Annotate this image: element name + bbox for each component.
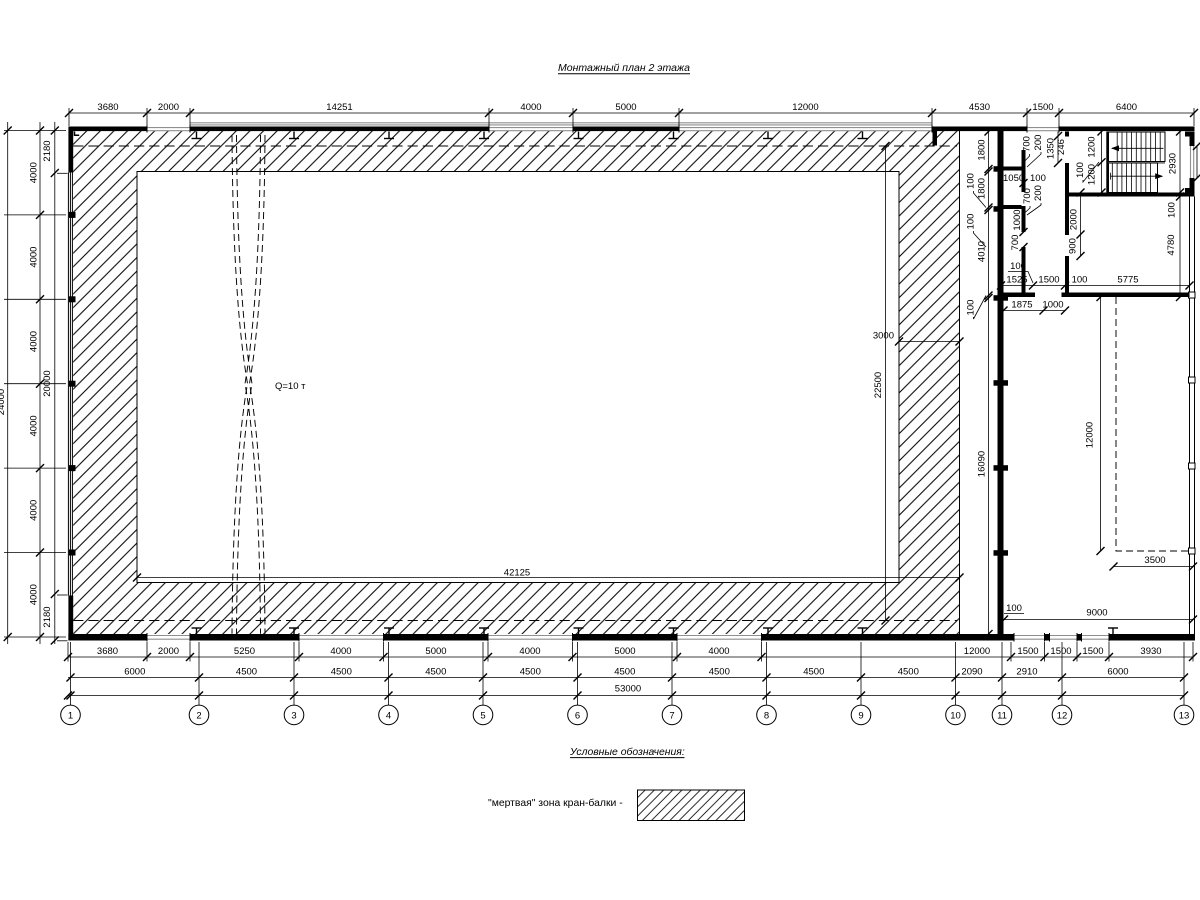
svg-text:1200: 1200 bbox=[1087, 164, 1098, 185]
svg-text:53000: 53000 bbox=[615, 684, 641, 695]
svg-text:100: 100 bbox=[1030, 173, 1046, 184]
svg-text:11: 11 bbox=[997, 710, 1007, 721]
svg-text:4500: 4500 bbox=[709, 667, 730, 678]
svg-text:Монтажный план 2 этажа: Монтажный план 2 этажа bbox=[558, 62, 690, 74]
svg-text:700: 700 bbox=[1022, 136, 1033, 152]
svg-text:100: 100 bbox=[1167, 202, 1178, 218]
svg-text:3500: 3500 bbox=[1144, 555, 1165, 566]
svg-text:6000: 6000 bbox=[124, 667, 145, 678]
svg-text:16090: 16090 bbox=[977, 451, 988, 477]
svg-text:1500: 1500 bbox=[1082, 646, 1103, 657]
svg-text:100: 100 bbox=[1010, 261, 1026, 272]
svg-text:24000: 24000 bbox=[0, 389, 7, 415]
svg-text:4010: 4010 bbox=[977, 241, 988, 262]
svg-text:2910: 2910 bbox=[1016, 667, 1037, 678]
svg-text:5: 5 bbox=[480, 710, 485, 721]
svg-text:2090: 2090 bbox=[961, 667, 982, 678]
svg-text:12000: 12000 bbox=[1085, 422, 1096, 448]
svg-text:5000: 5000 bbox=[615, 102, 636, 113]
svg-text:9: 9 bbox=[858, 710, 863, 721]
svg-text:700: 700 bbox=[1010, 235, 1021, 251]
svg-text:1200: 1200 bbox=[1087, 136, 1098, 157]
svg-text:100: 100 bbox=[1072, 275, 1088, 286]
svg-text:1525: 1525 bbox=[1006, 275, 1027, 286]
svg-text:13: 13 bbox=[1179, 710, 1190, 721]
svg-text:4000: 4000 bbox=[29, 331, 40, 352]
svg-text:2180: 2180 bbox=[42, 140, 53, 161]
svg-text:100: 100 bbox=[1075, 162, 1086, 178]
svg-text:4500: 4500 bbox=[425, 667, 446, 678]
svg-text:4500: 4500 bbox=[898, 667, 919, 678]
svg-text:100: 100 bbox=[1006, 603, 1022, 614]
svg-text:100: 100 bbox=[966, 300, 977, 316]
svg-text:6: 6 bbox=[575, 710, 580, 721]
svg-text:5250: 5250 bbox=[234, 646, 255, 657]
svg-text:5775: 5775 bbox=[1117, 275, 1138, 286]
svg-text:4000: 4000 bbox=[29, 415, 40, 436]
svg-text:1875: 1875 bbox=[1011, 300, 1032, 311]
svg-text:700: 700 bbox=[1022, 188, 1033, 204]
svg-text:1800: 1800 bbox=[977, 139, 988, 160]
svg-text:1350: 1350 bbox=[1046, 138, 1057, 159]
svg-text:8: 8 bbox=[764, 710, 769, 721]
svg-text:1800: 1800 bbox=[977, 178, 988, 199]
svg-text:12000: 12000 bbox=[792, 102, 818, 113]
svg-text:4500: 4500 bbox=[520, 667, 541, 678]
svg-text:3680: 3680 bbox=[97, 102, 118, 113]
svg-text:4780: 4780 bbox=[1166, 234, 1177, 255]
svg-text:4500: 4500 bbox=[803, 667, 824, 678]
svg-text:3000: 3000 bbox=[873, 331, 894, 342]
svg-text:2930: 2930 bbox=[1168, 153, 1179, 174]
svg-text:4000: 4000 bbox=[29, 247, 40, 268]
svg-text:4500: 4500 bbox=[236, 667, 257, 678]
svg-text:1500: 1500 bbox=[1017, 646, 1038, 657]
svg-text:1000: 1000 bbox=[1012, 209, 1023, 230]
svg-text:10: 10 bbox=[950, 710, 961, 721]
svg-text:12: 12 bbox=[1057, 710, 1068, 721]
svg-text:4000: 4000 bbox=[708, 646, 729, 657]
svg-text:2000: 2000 bbox=[158, 646, 179, 657]
svg-text:200: 200 bbox=[1033, 185, 1044, 201]
svg-text:100: 100 bbox=[966, 173, 977, 189]
svg-text:4: 4 bbox=[386, 710, 391, 721]
svg-text:Q=10 т: Q=10 т bbox=[275, 381, 306, 392]
svg-text:4000: 4000 bbox=[330, 646, 351, 657]
svg-text:"мертвая" зона кран-балки -: "мертвая" зона кран-балки - bbox=[488, 797, 623, 809]
svg-text:6000: 6000 bbox=[1107, 667, 1128, 678]
svg-text:5000: 5000 bbox=[425, 646, 446, 657]
svg-text:2: 2 bbox=[196, 710, 201, 721]
svg-text:Условные обозначения:: Условные обозначения: bbox=[569, 746, 685, 758]
svg-text:4000: 4000 bbox=[29, 500, 40, 521]
svg-text:7: 7 bbox=[669, 710, 674, 721]
svg-text:3930: 3930 bbox=[1140, 646, 1161, 657]
svg-text:42125: 42125 bbox=[504, 567, 530, 578]
svg-text:4000: 4000 bbox=[29, 162, 40, 183]
svg-text:1000: 1000 bbox=[1042, 300, 1063, 311]
svg-text:3680: 3680 bbox=[97, 646, 118, 657]
svg-text:3: 3 bbox=[291, 710, 296, 721]
svg-text:14251: 14251 bbox=[326, 102, 352, 113]
svg-text:4000: 4000 bbox=[519, 646, 540, 657]
svg-text:5000: 5000 bbox=[614, 646, 635, 657]
svg-text:1: 1 bbox=[68, 710, 73, 721]
svg-text:4000: 4000 bbox=[520, 102, 541, 113]
svg-text:4000: 4000 bbox=[29, 584, 40, 605]
svg-text:2180: 2180 bbox=[42, 606, 53, 627]
svg-text:900: 900 bbox=[1068, 238, 1079, 254]
svg-text:1050: 1050 bbox=[1003, 173, 1024, 184]
svg-text:6400: 6400 bbox=[1116, 102, 1137, 113]
svg-text:9000: 9000 bbox=[1086, 608, 1107, 619]
svg-text:12000: 12000 bbox=[964, 646, 990, 657]
svg-text:4500: 4500 bbox=[331, 667, 352, 678]
svg-text:22500: 22500 bbox=[873, 372, 884, 398]
svg-text:4530: 4530 bbox=[969, 102, 990, 113]
svg-text:1500: 1500 bbox=[1038, 275, 1059, 286]
svg-text:4500: 4500 bbox=[614, 667, 635, 678]
svg-text:2000: 2000 bbox=[158, 102, 179, 113]
svg-text:200: 200 bbox=[1033, 135, 1044, 151]
svg-text:1500: 1500 bbox=[1032, 102, 1053, 113]
svg-text:1500: 1500 bbox=[1050, 646, 1071, 657]
svg-text:100: 100 bbox=[966, 214, 977, 230]
svg-text:2000: 2000 bbox=[1069, 209, 1080, 230]
svg-text:246: 246 bbox=[1056, 139, 1067, 155]
